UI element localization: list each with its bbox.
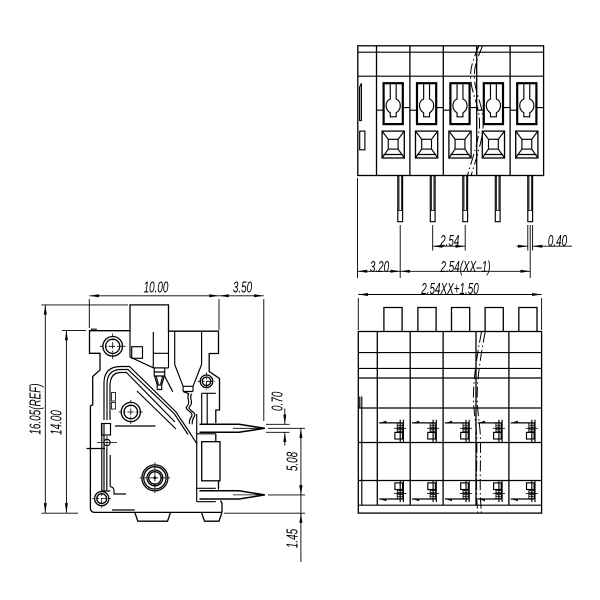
svg-text:2.54(XX–1): 2.54(XX–1): [440, 257, 491, 275]
svg-text:10.00: 10.00: [144, 278, 169, 296]
svg-text:3.20: 3.20: [370, 257, 390, 275]
svg-text:5.08: 5.08: [283, 451, 301, 471]
svg-text:2.54XX+1.50: 2.54XX+1.50: [420, 279, 479, 297]
svg-text:14.00: 14.00: [47, 410, 65, 435]
svg-text:0.70: 0.70: [268, 391, 286, 411]
svg-text:3.50: 3.50: [233, 278, 253, 296]
svg-text:2.54: 2.54: [439, 232, 459, 250]
svg-text:1.45: 1.45: [283, 528, 301, 548]
svg-text:16.05(REF): 16.05(REF): [26, 383, 44, 434]
svg-text:0.40: 0.40: [548, 232, 568, 250]
